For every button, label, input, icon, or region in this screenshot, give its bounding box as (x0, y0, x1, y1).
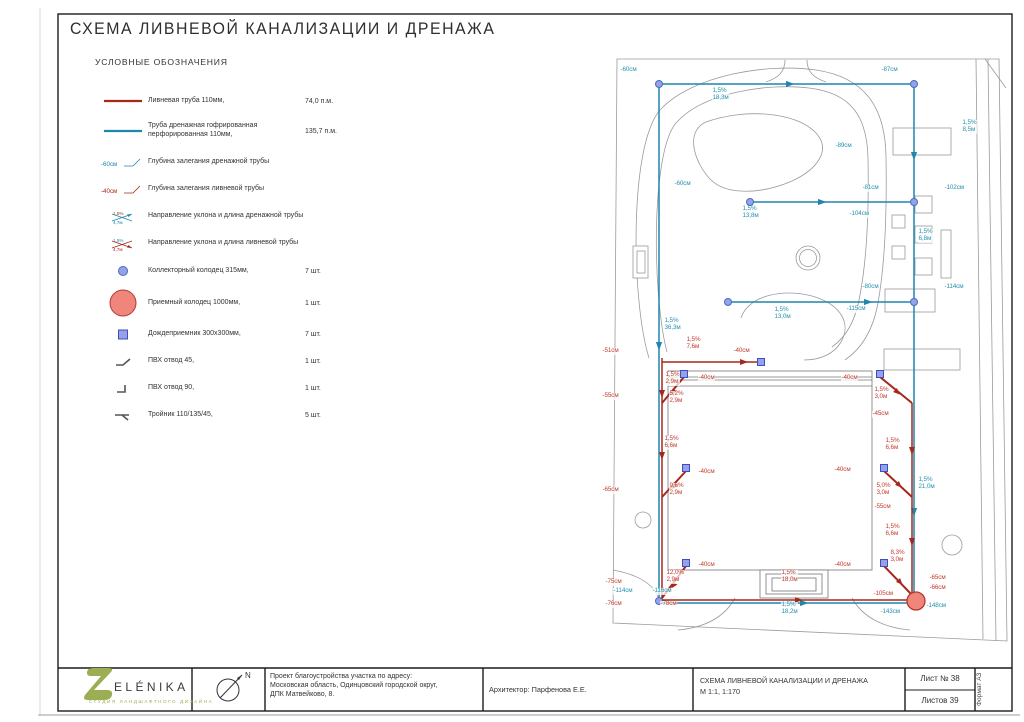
legend-item: Труба дренажная гофрированная перфориров… (98, 114, 418, 148)
drainage-annotation: -80см (862, 284, 879, 291)
legend-item-value: 1 шт. (305, 300, 321, 307)
logo-z-icon (80, 666, 114, 702)
legend-item-label: Коллекторный колодец 315мм, (148, 267, 305, 276)
legend-item: 1,5%4,7мНаправление уклона и длина ливне… (98, 230, 418, 257)
sheets-total: Листов 39 (905, 696, 975, 705)
pvc-bend-90-icon (98, 383, 148, 395)
storm-annotation: 1,5%6,6м (885, 438, 900, 452)
legend-item-value: 1 шт. (305, 358, 321, 365)
drainage-annotation: 1,5%8,5м (962, 120, 977, 134)
legend-item-label: Дождеприемник 300х300мм, (148, 330, 305, 339)
storm-annotation: 5,0%3,0м (876, 483, 891, 497)
architect: Архитектор: Парфенова Е.Е. (489, 685, 689, 694)
storm-pipe-line-icon (98, 96, 148, 106)
legend-item: -60смГлубина залегания дренажной трубы (98, 148, 418, 176)
legend-item: Коллекторный колодец 315мм,7 шт. (98, 257, 418, 285)
storm-annotation: 1,5%2,9м (665, 372, 680, 386)
legend-item: Приемный колодец 1000мм,1 шт. (98, 285, 418, 321)
legend-item: Тройник 110/135/45,5 шт. (98, 402, 418, 429)
storm-annotation: -66см (929, 585, 946, 592)
legend-heading: УСЛОВНЫЕ ОБОЗНАЧЕНИЯ (95, 57, 228, 67)
drainage-annotation: 1,5%13,0м (774, 307, 791, 321)
storm-annotation: -40см (834, 467, 851, 474)
legend-item: Дождеприемник 300х300мм,7 шт. (98, 321, 418, 348)
storm-slope-icon: 1,5%4,7м (98, 236, 148, 252)
legend-item-label: Ливневая труба 110мм, (148, 97, 305, 106)
legend-item-value: 135,7 п.м. (305, 128, 337, 135)
storm-annotation: -78см (660, 601, 677, 608)
legend-item: ПВХ отвод 90,1 шт. (98, 375, 418, 402)
storm-annotation: 1,5%18,0м (781, 570, 798, 584)
storm-annotation: 9,6%2,9м (669, 483, 684, 497)
landscape-lines (613, 59, 1007, 641)
legend-item: -40смГлубина залегания ливневой трубы (98, 176, 418, 203)
legend-item-value: 7 шт. (305, 331, 321, 338)
storm-annotation: -51см (602, 348, 619, 355)
doc-title: СХЕМА ЛИВНЕВОЙ КАНАЛИЗАЦИИ И ДРЕНАЖА (700, 676, 900, 686)
storm-annotation: -75см (605, 579, 622, 586)
legend-item: ПВХ отвод 45,1 шт. (98, 348, 418, 375)
collector-well-icon (98, 265, 148, 277)
storm-annotation: -40см (698, 375, 715, 382)
svg-text:-40см: -40см (101, 188, 117, 195)
drainage-annotation: -102см (944, 185, 964, 192)
drainage-annotation: -143см (880, 609, 900, 616)
svg-text:4,7м: 4,7м (113, 220, 123, 225)
rain-inlets (681, 359, 888, 567)
drainage-annotation: -116см (652, 588, 672, 595)
drainage-annotation: 1,5%18,2м (781, 602, 798, 616)
drainage-annotation: 1,5%36,3м (664, 318, 681, 332)
legend-item-label: Глубина залегания ливневой трубы (148, 185, 305, 194)
svg-text:4,7м: 4,7м (113, 247, 123, 252)
storm-annotation: -105см (873, 591, 893, 598)
storm-annotation: -40см (834, 562, 851, 569)
drain-slope-icon: 1,5%4,7м (98, 209, 148, 225)
drawing-sheet: СХЕМА ЛИВНЕВОЙ КАНАЛИЗАЦИИ И ДРЕНАЖА УСЛ… (0, 0, 1024, 722)
page-title: СХЕМА ЛИВНЕВОЙ КАНАЛИЗАЦИИ И ДРЕНАЖА (70, 20, 495, 39)
legend-item: 1,5%4,7мНаправление уклона и длина дрена… (98, 203, 418, 230)
legend-item-value: 74,0 п.м. (305, 98, 333, 105)
drainage-annotation: -114см (944, 284, 964, 291)
legend-item-label: Направление уклона и длина дренажной тру… (148, 212, 305, 221)
storm-annotation: -40см (698, 469, 715, 476)
storm-depth-icon: -40см (98, 183, 148, 196)
storm-annotation: -45см (872, 411, 889, 418)
storm-annotation: 1,5%7,6м (686, 337, 701, 351)
logo-name: ELÉNIKA (114, 680, 189, 694)
storm-annotation: -55см (874, 504, 891, 511)
drainage-annotation: -87см (881, 67, 898, 74)
legend-item-value: 7 шт. (305, 268, 321, 275)
legend-item-value: 5 шт. (305, 412, 321, 419)
storm-annotation: -76см (605, 601, 622, 608)
drainage-annotation: -114см (613, 588, 633, 595)
legend-item-value: 1 шт. (305, 385, 321, 392)
storm-annotation: 1,5%3,0м (874, 387, 889, 401)
legend: Ливневая труба 110мм,74,0 п.м.Труба дрен… (98, 88, 418, 429)
pvc-bend-45-icon (98, 356, 148, 368)
svg-text:-60см: -60см (101, 161, 117, 168)
storm-annotation: -40см (841, 375, 858, 382)
drainage-annotation: 1,5%6,8м (918, 229, 933, 243)
storm-annotation: 1,5%6,6м (885, 524, 900, 538)
storm-annotation: 5,2%2,9м (669, 391, 684, 405)
legend-item-label: Приемный колодец 1000мм, (148, 299, 305, 308)
drainage-annotation: -81см (862, 185, 879, 192)
drainage-annotation: 1,5%18,3м (712, 88, 729, 102)
tee-fitting-icon (98, 410, 148, 422)
storm-annotation: -65см (602, 487, 619, 494)
legend-item-label: Направление уклона и длина ливневой труб… (148, 239, 305, 248)
legend-item-label: ПВХ отвод 90, (148, 384, 305, 393)
north-arrow-icon: N (204, 666, 259, 710)
storm-annotation: 8,3%3,0м (890, 550, 905, 564)
drainage-annotation: -60см (620, 67, 637, 74)
storm-annotation: 1,5%6,6м (664, 436, 679, 450)
drainage-annotation: -60см (674, 181, 691, 188)
drainage-annotation: 1,5%13,8м (742, 206, 759, 220)
storm-annotation: -55см (602, 393, 619, 400)
drainage-annotation: -89см (835, 143, 852, 150)
storm-annotation: -65см (929, 575, 946, 582)
legend-item-label: Глубина залегания дренажной трубы (148, 158, 305, 167)
format-label: Формат А3 (976, 668, 1012, 711)
drainage-annotation: -115см (846, 306, 866, 313)
sheet-number: Лист № 38 (905, 674, 975, 683)
receiving-well-icon (98, 288, 148, 318)
drainage-annotation: -104см (849, 211, 869, 218)
storm-annotation: -40см (733, 348, 750, 355)
legend-item-label: Труба дренажная гофрированная перфориров… (148, 122, 305, 140)
rain-inlet-icon (98, 328, 148, 341)
legend-item-label: Тройник 110/135/45, (148, 411, 305, 420)
legend-item: Ливневая труба 110мм,74,0 п.м. (98, 88, 418, 114)
project-address: Проект благоустройства участка по адресу… (270, 672, 480, 699)
drain-depth-icon: -60см (98, 156, 148, 169)
drainage-annotation: 1,5%21,0м (918, 477, 935, 491)
storm-annotation: -40см (698, 562, 715, 569)
legend-item-label: ПВХ отвод 45, (148, 357, 305, 366)
company-logo: ELÉNIKA СТУДИЯ ЛАНДШАФТНОГО ДИЗАЙНА (80, 666, 210, 710)
doc-scale: М 1:1, 1:170 (700, 687, 900, 696)
north-label: N (245, 671, 251, 680)
drain-pipe-line-icon (98, 126, 148, 136)
storm-annotation: 12,0%2,9м (666, 570, 684, 584)
receiving-well (907, 592, 925, 610)
drainage-annotation: -148см (926, 603, 946, 610)
